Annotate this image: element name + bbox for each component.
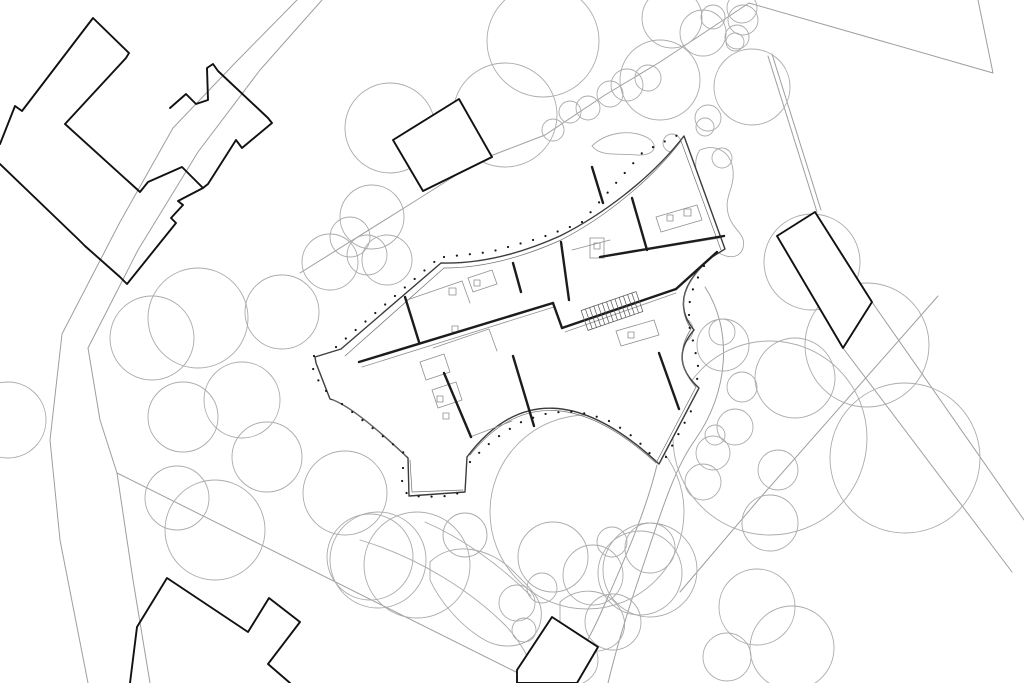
site-plan-page: [0, 0, 1024, 683]
site-plan-canvas: [0, 0, 1024, 683]
